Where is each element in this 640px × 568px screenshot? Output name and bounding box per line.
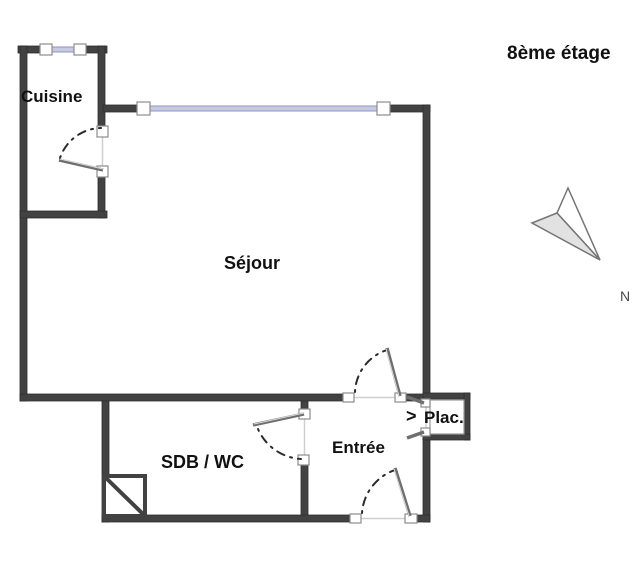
wall-sdb-divider-lower bbox=[301, 464, 308, 515]
room-label-placard: Plac. bbox=[424, 409, 464, 426]
wall-right-exterior-lower bbox=[423, 436, 430, 522]
north-compass-icon bbox=[532, 188, 600, 260]
entrance-door-swing-arc bbox=[362, 470, 395, 513]
room-label-sejour: Séjour bbox=[224, 254, 280, 272]
floor-title: 8ème étage bbox=[507, 43, 611, 65]
sejour-entree-door bbox=[343, 348, 406, 402]
duct-shaft bbox=[104, 476, 145, 516]
sdb-door-leaf bbox=[253, 414, 304, 425]
entrance-door-jamb-left bbox=[350, 514, 361, 523]
sejour-window bbox=[137, 102, 390, 115]
sejour-window-jamb-left bbox=[137, 102, 150, 115]
sdb-door-leaf-highlight bbox=[254, 413, 304, 424]
sdb-door-swing-arc bbox=[258, 429, 301, 459]
room-label-entree: Entrée bbox=[332, 439, 385, 456]
floor-plan: 8ème étage N Cuisine Séjour SDB / WC Ent… bbox=[0, 0, 640, 568]
sdb-door bbox=[253, 409, 310, 465]
wall-kitchen-bottom bbox=[20, 211, 107, 218]
kitchen-door-swing-arc bbox=[60, 128, 101, 158]
room-label-sdb-wc: SDB / WC bbox=[161, 453, 244, 471]
wall-sejour-top-stub bbox=[103, 105, 141, 112]
sejour-window-glass bbox=[148, 106, 380, 111]
kitchen-door bbox=[59, 126, 108, 177]
wall-placard-right bbox=[464, 393, 470, 440]
sejour-door-swing-arc bbox=[355, 350, 387, 392]
wall-sejour-bottom bbox=[20, 394, 346, 401]
wall-placard-top bbox=[423, 393, 470, 399]
room-label-cuisine: Cuisine bbox=[21, 88, 82, 105]
sejour-door-leaf-highlight bbox=[386, 349, 399, 396]
kitchen-window-jamb-right bbox=[74, 44, 86, 55]
sejour-door-jamb-left bbox=[343, 393, 354, 402]
kitchen-window bbox=[40, 44, 86, 55]
floor-plan-drawing bbox=[0, 0, 640, 568]
kitchen-window-jamb-left bbox=[40, 44, 52, 55]
wall-right-exterior-upper bbox=[423, 105, 430, 397]
entrance-door-leaf bbox=[395, 468, 410, 516]
placard-chevron-symbol: > bbox=[406, 407, 417, 425]
sejour-window-jamb-right bbox=[377, 102, 390, 115]
entrance-door bbox=[350, 468, 417, 523]
sejour-door-leaf bbox=[387, 348, 400, 396]
walls bbox=[18, 46, 470, 522]
entrance-door-leaf-highlight bbox=[394, 469, 409, 516]
sdb-door-jamb-bottom bbox=[298, 455, 309, 465]
kitchen-door-leaf-highlight bbox=[60, 159, 103, 169]
wall-kitchen-right-upper bbox=[98, 46, 105, 127]
kitchen-door-leaf bbox=[59, 160, 103, 170]
compass-north-label: N bbox=[620, 288, 630, 304]
